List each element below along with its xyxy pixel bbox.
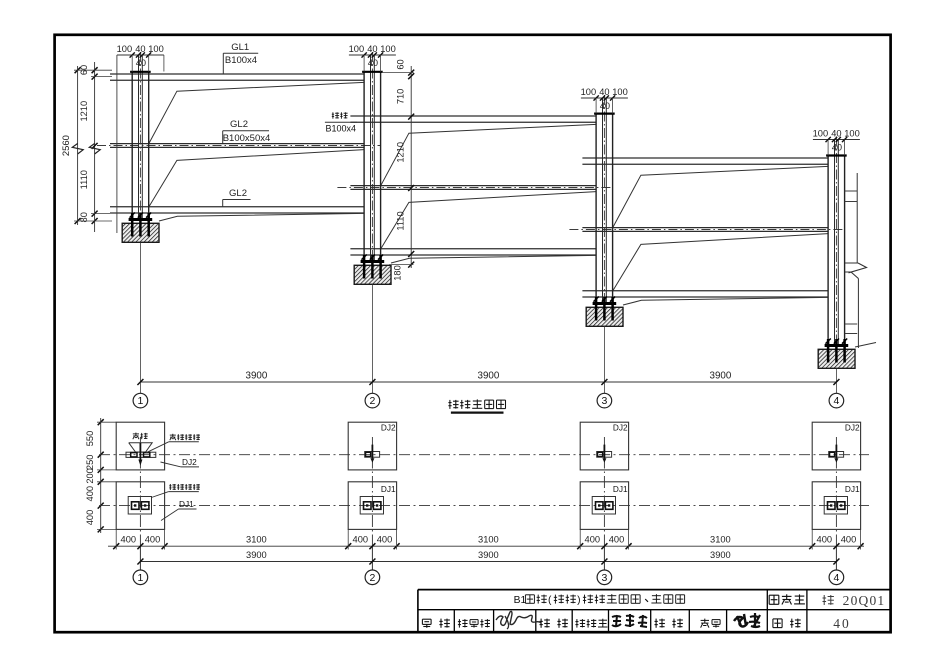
svg-text:20Q01: 20Q01 [843, 593, 886, 608]
svg-text:DJ1: DJ1 [613, 485, 628, 494]
svg-text:DJ1: DJ1 [845, 485, 860, 494]
svg-text:3900: 3900 [710, 550, 731, 560]
svg-text:3900: 3900 [478, 550, 499, 560]
svg-text:B100x4: B100x4 [326, 124, 357, 134]
svg-text:100: 100 [349, 44, 365, 54]
svg-text:40: 40 [599, 87, 609, 97]
svg-text:710: 710 [395, 89, 405, 105]
svg-text:40: 40 [368, 58, 378, 68]
svg-text:3900: 3900 [246, 550, 267, 560]
svg-text:3: 3 [601, 395, 607, 407]
svg-text:3: 3 [601, 572, 607, 584]
svg-text:40: 40 [600, 101, 610, 111]
svg-text:100: 100 [148, 44, 164, 54]
svg-text:3100: 3100 [246, 535, 267, 545]
svg-text:DJ2: DJ2 [381, 424, 396, 433]
svg-text:3100: 3100 [710, 535, 731, 545]
svg-text:GL2: GL2 [230, 119, 248, 130]
svg-text:250: 250 [85, 455, 95, 471]
svg-text:400: 400 [85, 486, 95, 502]
svg-text:100: 100 [581, 87, 597, 97]
svg-text:4: 4 [833, 572, 839, 584]
svg-text:B1: B1 [514, 595, 527, 606]
svg-text:2: 2 [369, 572, 375, 584]
svg-text:DJ1: DJ1 [381, 485, 396, 494]
svg-text:GL1: GL1 [231, 42, 249, 53]
svg-text:60: 60 [395, 59, 405, 69]
svg-text:400: 400 [609, 535, 625, 545]
svg-text:): ) [577, 595, 580, 606]
svg-text:180: 180 [393, 265, 403, 281]
svg-text:100: 100 [117, 44, 133, 54]
svg-text:400: 400 [585, 535, 601, 545]
svg-text:B100x50x4: B100x50x4 [223, 133, 271, 144]
svg-text:100: 100 [844, 128, 860, 138]
svg-text:3900: 3900 [246, 370, 268, 381]
svg-text:400: 400 [377, 535, 393, 545]
svg-text:400: 400 [353, 535, 369, 545]
svg-text:GL2: GL2 [229, 188, 247, 199]
svg-text:100: 100 [612, 87, 628, 97]
svg-text:1110: 1110 [395, 211, 405, 230]
svg-text:1: 1 [137, 395, 143, 407]
svg-text:DJ1: DJ1 [179, 500, 194, 509]
svg-text:3100: 3100 [478, 535, 499, 545]
svg-text:(: ( [548, 595, 552, 606]
svg-text:B100x4: B100x4 [225, 55, 257, 66]
svg-text:1210: 1210 [395, 142, 405, 163]
svg-text:1210: 1210 [79, 101, 89, 122]
svg-text:40: 40 [833, 616, 851, 631]
svg-text:400: 400 [841, 535, 857, 545]
svg-text:200: 200 [85, 468, 95, 484]
svg-text:1: 1 [137, 572, 143, 584]
svg-text:40: 40 [136, 58, 146, 68]
svg-text:DJ2: DJ2 [613, 424, 628, 433]
svg-text:40: 40 [831, 128, 841, 138]
svg-text:400: 400 [145, 535, 161, 545]
svg-text:100: 100 [380, 44, 396, 54]
svg-text:40: 40 [135, 44, 145, 54]
svg-text:1110: 1110 [79, 170, 89, 189]
svg-text:100: 100 [813, 128, 829, 138]
svg-text:4: 4 [833, 395, 839, 407]
svg-text:400: 400 [121, 535, 137, 545]
svg-text:40: 40 [832, 143, 842, 153]
svg-text:550: 550 [85, 431, 95, 447]
svg-text:3900: 3900 [478, 370, 500, 381]
svg-text:400: 400 [85, 510, 95, 526]
svg-text:40: 40 [367, 44, 377, 54]
svg-text:DJ2: DJ2 [845, 424, 860, 433]
svg-text:2: 2 [369, 395, 375, 407]
svg-text:400: 400 [817, 535, 833, 545]
svg-text:3900: 3900 [710, 370, 732, 381]
svg-text:2560: 2560 [61, 135, 72, 156]
svg-text:DJ2: DJ2 [182, 458, 197, 467]
